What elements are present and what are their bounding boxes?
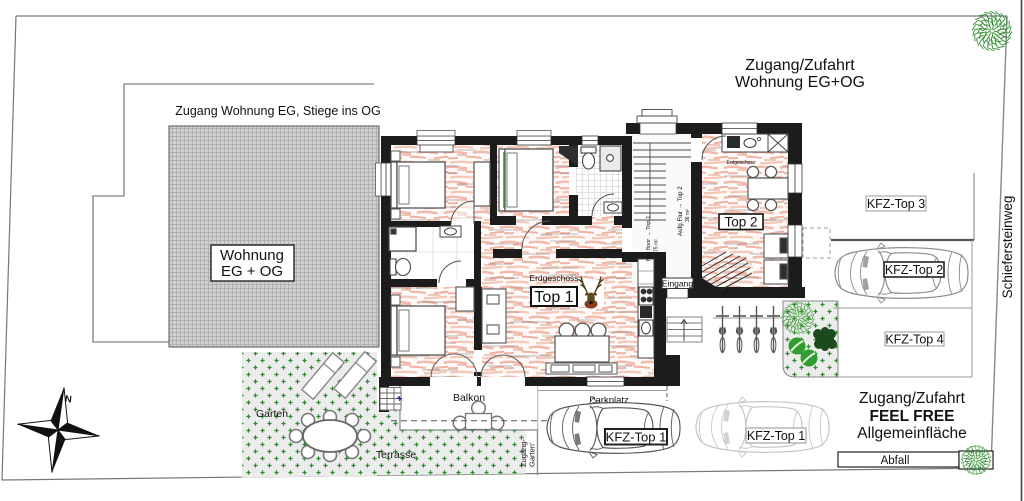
svg-text:Terrasse: Terrasse: [376, 449, 416, 461]
svg-text:Garten': Garten': [528, 442, 537, 467]
svg-text:Schiefersteinweg: Schiefersteinweg: [1000, 196, 1015, 299]
svg-text:KFZ-Top 3: KFZ-Top 3: [867, 197, 925, 211]
svg-text:Erdgeschoss: Erdgeschoss: [529, 273, 578, 283]
svg-text:Zugang Wohnung EG, Stiege ins: Zugang Wohnung EG, Stiege ins OG: [175, 104, 380, 118]
svg-text:Abfall: Abfall: [881, 455, 910, 467]
svg-text:KFZ-Top 4: KFZ-Top 4: [885, 333, 943, 347]
svg-text:Erdgeschoss: Erdgeschoss: [727, 160, 756, 166]
svg-text:FEEL FREE: FEEL FREE: [870, 408, 955, 425]
svg-text:KFZ-Top 1: KFZ-Top 1: [747, 429, 805, 443]
svg-text:Wohnung EG+OG: Wohnung EG+OG: [735, 74, 865, 91]
svg-text:Eingang: Eingang: [662, 279, 693, 289]
svg-text:Aufg.Flur → Top 2: Aufg.Flur → Top 2: [677, 186, 684, 236]
svg-text:75 m²: 75 m²: [654, 239, 660, 252]
svg-text:Wohnung: Wohnung: [220, 247, 284, 264]
svg-text:KFZ-Top 1: KFZ-Top 1: [606, 430, 667, 445]
svg-text:Top 2: Top 2: [724, 215, 757, 230]
svg-text:Garten: Garten: [256, 408, 288, 420]
svg-text:Zugang/Zufahrt: Zugang/Zufahrt: [859, 390, 966, 407]
svg-text:KFZ-Top 2: KFZ-Top 2: [885, 263, 943, 277]
svg-text:EG + OG: EG + OG: [221, 263, 283, 280]
svg-text:first floor → Top 1: first floor → Top 1: [646, 216, 652, 261]
svg-text:36 m²: 36 m²: [685, 209, 691, 222]
svg-text:Top 1: Top 1: [534, 289, 573, 306]
svg-text:Zugang/Zufahrt: Zugang/Zufahrt: [745, 57, 855, 74]
svg-text:Allgemeinfläche: Allgemeinfläche: [857, 425, 966, 442]
